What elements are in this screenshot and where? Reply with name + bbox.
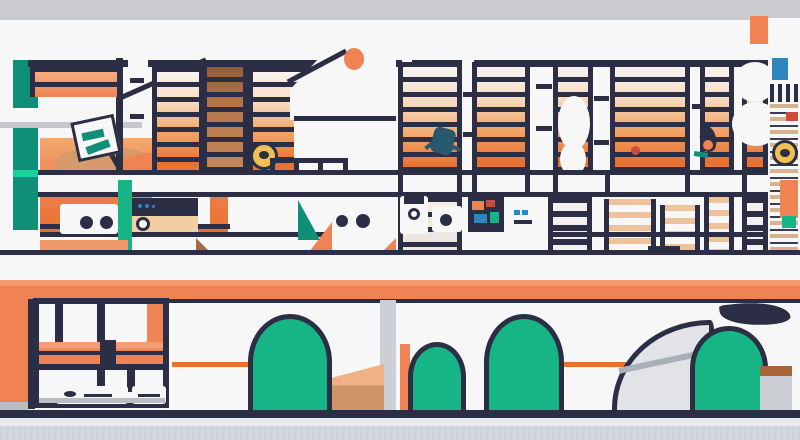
gap-dash-9 — [692, 104, 701, 109]
register-key-2 — [522, 210, 528, 215]
coin-sign-mark — [259, 151, 269, 159]
wood-pillar — [202, 62, 248, 182]
wall-orange-line-1 — [172, 362, 248, 367]
register-slot — [514, 220, 532, 224]
teal-glow — [13, 170, 38, 177]
beam-post-2 — [457, 170, 462, 197]
arch-2 — [408, 342, 466, 414]
beam-post-7 — [685, 170, 690, 197]
menu-pixel-blue — [474, 214, 487, 223]
grinder-knob — [408, 208, 420, 220]
gap-dash-4 — [463, 132, 472, 137]
lamp — [344, 48, 364, 70]
gap-dash-8 — [594, 140, 609, 145]
menu-pixel-red — [486, 200, 495, 207]
arch-3 — [484, 314, 564, 414]
louver-j — [700, 62, 734, 180]
espresso-knob-2 — [356, 214, 370, 228]
menu-pixel-green — [490, 212, 499, 223]
grid-post-1 — [55, 298, 63, 348]
menu-pixel-orange — [472, 201, 484, 210]
stool-body — [760, 376, 792, 414]
stool-top — [760, 366, 792, 376]
beam-post-6 — [605, 170, 610, 197]
louver-g — [472, 62, 530, 180]
stove-knob-2 — [100, 216, 113, 229]
beam2-right — [548, 232, 768, 237]
register-key-1 — [514, 210, 520, 215]
gap-dash-7 — [594, 96, 609, 101]
machine-light-3 — [152, 205, 155, 208]
beam-post-1 — [398, 170, 403, 197]
goods-shelf-comb — [770, 84, 798, 102]
gap-dash-1 — [130, 78, 144, 83]
gap-dash-5 — [536, 84, 552, 89]
under-awning-line — [294, 116, 396, 121]
counter-orange-band — [0, 280, 800, 299]
topbar-1 — [28, 60, 128, 67]
teal-strip-lower — [13, 177, 38, 230]
beam-post-5 — [553, 170, 558, 197]
railing-top — [270, 158, 348, 163]
goods-item-orange — [780, 180, 798, 218]
louver-n — [660, 205, 700, 251]
till-1-line — [84, 394, 112, 397]
till-2-line — [138, 394, 160, 397]
machine-knob-ring — [136, 217, 150, 231]
illustration-canvas — [0, 0, 800, 440]
flower-dot — [631, 146, 640, 155]
perched-bird-belly — [703, 140, 713, 150]
floor — [0, 424, 800, 440]
beam-post-8 — [742, 170, 747, 197]
till-1-blob — [64, 391, 76, 397]
louver-i — [610, 62, 690, 180]
gap-dash-6 — [536, 126, 552, 131]
arch-1 — [248, 314, 332, 414]
stove-knob-1 — [80, 216, 93, 229]
gap-dash-2 — [130, 114, 144, 119]
beam-post-4 — [525, 170, 530, 197]
goods-item-blue — [772, 58, 788, 80]
left-wall-orange — [0, 299, 28, 409]
arch-4 — [690, 326, 768, 414]
mixer-knob — [440, 214, 452, 226]
grid-orange-pane — [147, 304, 163, 344]
goods-coin-mark — [780, 149, 790, 157]
beam-post-3 — [472, 170, 477, 197]
gap-dash-3 — [463, 92, 472, 97]
grid-inner-base — [39, 398, 165, 403]
register — [510, 202, 538, 232]
transom-top — [38, 170, 768, 175]
espresso-knob-1 — [336, 215, 348, 227]
louver-a — [30, 67, 122, 97]
machine-light-2 — [145, 204, 149, 208]
louver-b — [152, 67, 204, 181]
goods-shelf-top-orange — [750, 16, 768, 44]
goods-item-teal — [782, 216, 796, 228]
goods-item-red — [786, 112, 798, 121]
sky-band — [0, 0, 800, 20]
machine-panel — [132, 198, 198, 216]
wall-orange-line-2 — [556, 362, 630, 367]
base-bar — [0, 410, 800, 418]
grinder-top — [404, 196, 424, 204]
machine-light-1 — [138, 204, 142, 208]
counter-white — [0, 255, 800, 280]
base-step — [0, 418, 800, 426]
